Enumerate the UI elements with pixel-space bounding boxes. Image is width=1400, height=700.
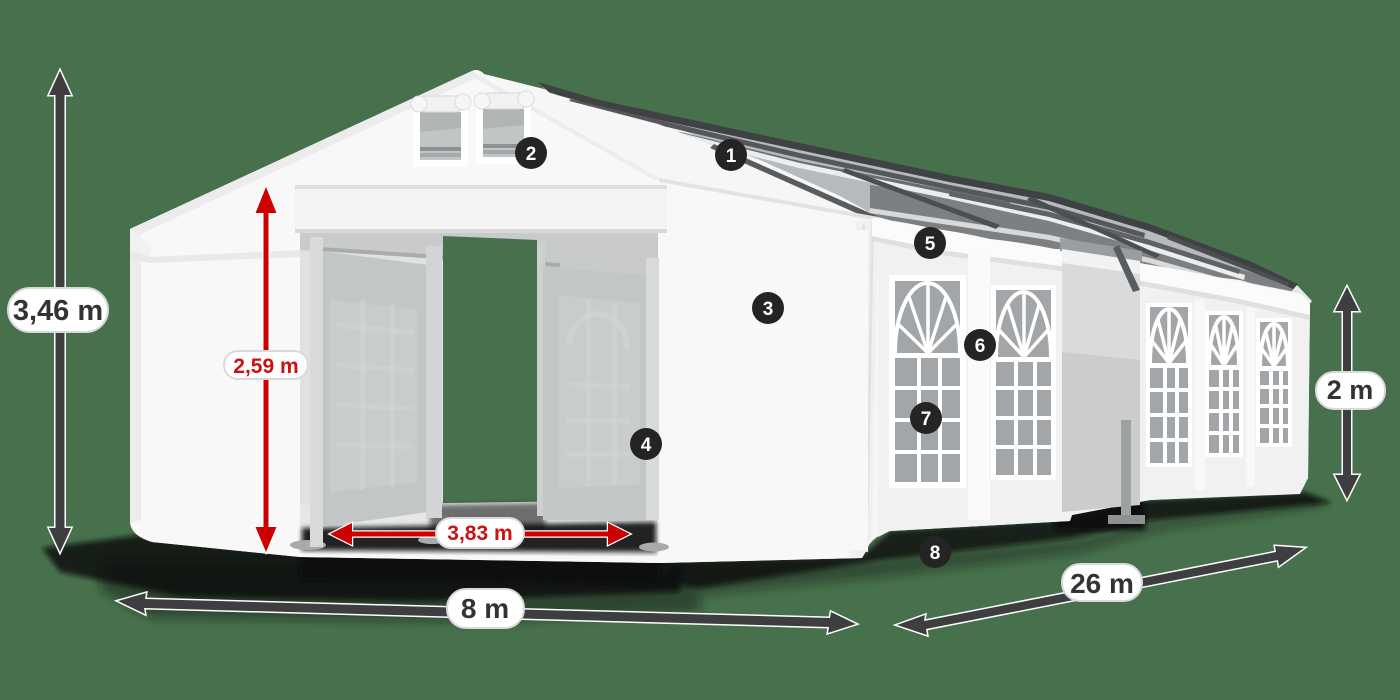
svg-text:8 m: 8 m [461,593,509,624]
svg-text:6: 6 [975,336,986,357]
svg-text:2,59 m: 2,59 m [233,355,298,378]
svg-text:3: 3 [763,299,774,320]
svg-text:26 m: 26 m [1070,568,1134,599]
svg-text:2 m: 2 m [1327,375,1374,405]
svg-text:4: 4 [641,435,652,456]
svg-text:8: 8 [930,543,941,564]
svg-text:3,83 m: 3,83 m [447,522,512,545]
svg-text:3,46 m: 3,46 m [13,295,103,327]
svg-text:1: 1 [726,146,737,167]
svg-text:7: 7 [921,409,932,430]
svg-text:5: 5 [925,234,936,255]
svg-text:2: 2 [526,144,537,165]
